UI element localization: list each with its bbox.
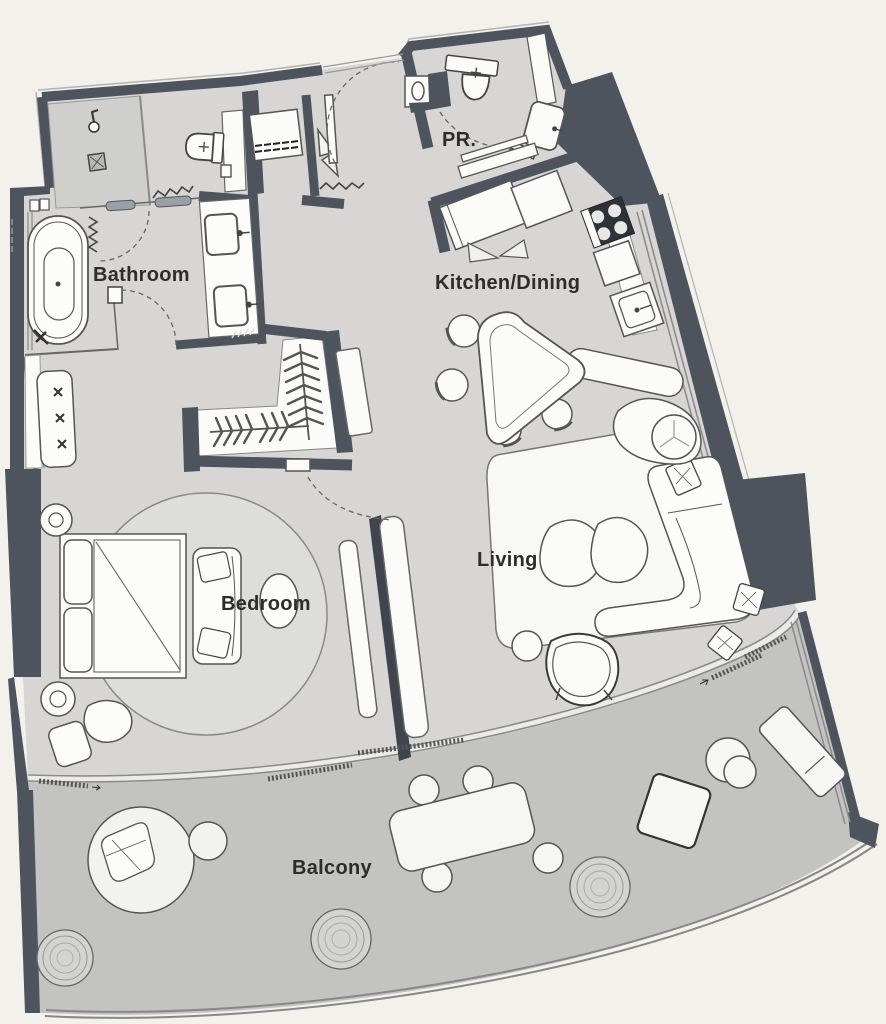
svg-text:Balcony: Balcony — [292, 857, 372, 879]
svg-text:Kitchen/Dining: Kitchen/Dining — [435, 272, 580, 294]
svg-text:Bedroom: Bedroom — [221, 593, 311, 615]
svg-text:Living: Living — [477, 549, 538, 571]
svg-text:Bathroom: Bathroom — [93, 264, 190, 286]
svg-text:PR.: PR. — [442, 129, 476, 151]
